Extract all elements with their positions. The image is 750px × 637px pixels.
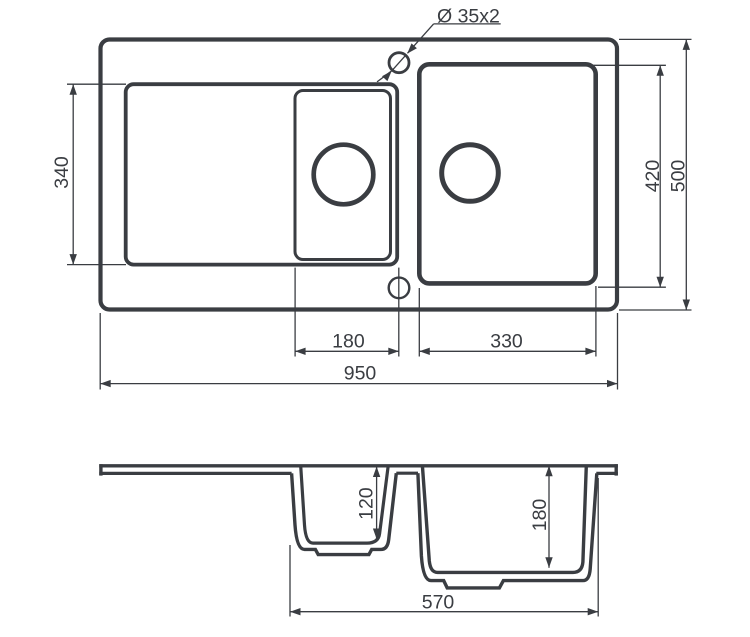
svg-text:330: 330 [490,331,523,353]
svg-text:950: 950 [344,363,377,385]
svg-text:420: 420 [642,160,664,193]
svg-text:180: 180 [332,331,365,353]
svg-text:570: 570 [422,592,455,614]
svg-text:500: 500 [668,160,690,193]
svg-text:120: 120 [355,487,377,520]
svg-text:340: 340 [51,156,73,189]
svg-text:180: 180 [529,499,551,532]
svg-text:Ø 35x2: Ø 35x2 [437,5,500,27]
